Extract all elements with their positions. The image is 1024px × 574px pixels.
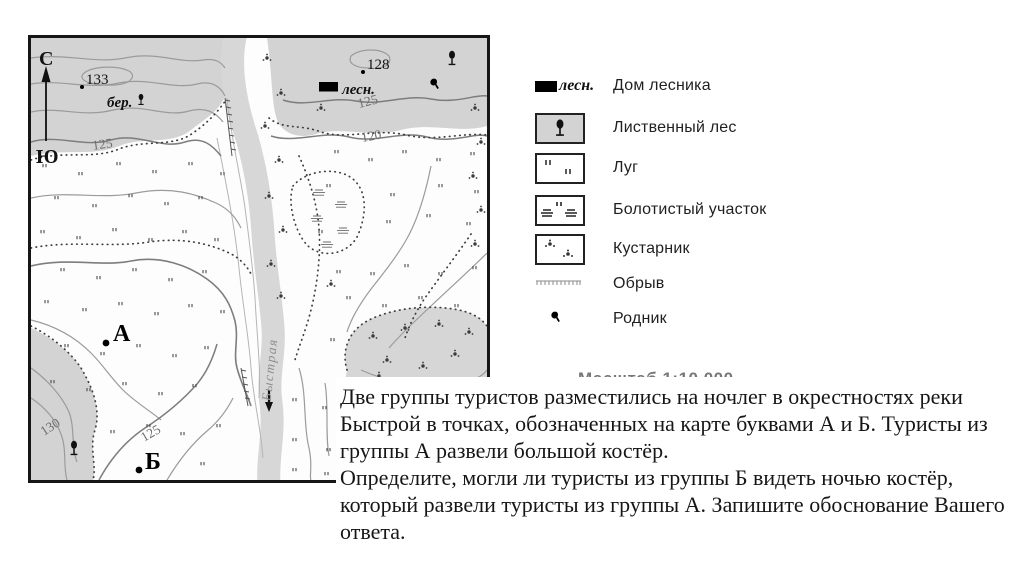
- point-b-label: Б: [145, 449, 161, 475]
- point-a-label: А: [113, 321, 131, 347]
- swamp-marks-icon: [537, 197, 583, 224]
- swamp-symbols: [311, 184, 349, 247]
- house-rect-icon: [535, 81, 557, 92]
- legend-label: Родник: [613, 310, 667, 328]
- cliff-hatch-icon: [535, 279, 583, 289]
- shrub-symbol: [535, 234, 599, 265]
- point-b-marker: Б: [136, 449, 161, 475]
- swamp-symbol: [535, 195, 599, 226]
- legend-row-cliff: Обрыв: [535, 274, 665, 294]
- forester-house-icon: [319, 82, 338, 92]
- compass-north-label: С: [39, 48, 53, 70]
- legend-row-meadow: Луг: [535, 152, 638, 184]
- cliff-symbol: [535, 279, 599, 289]
- legend-row-swamp: Болотистый участок: [535, 194, 766, 226]
- contour-120: 120: [360, 127, 383, 145]
- legend-label: Кустарник: [613, 240, 690, 258]
- meadow-symbol: [535, 153, 599, 184]
- legend-row-deciduous-forest: Лиственный лес: [535, 112, 737, 144]
- contour-125-bottom: 125: [138, 421, 163, 444]
- elevation-133-label: 133: [86, 72, 109, 88]
- point-a-marker: А: [103, 321, 131, 347]
- forester-house-symbol: лесн.: [535, 77, 599, 95]
- spring-drop-icon: [549, 311, 563, 327]
- contour-125-left: 125: [91, 135, 113, 153]
- question-paragraph-2: Определите, могли ли туристы из группы Б…: [336, 464, 1018, 545]
- elevation-128-label: 128: [367, 57, 390, 73]
- legend-label: Болотистый участок: [613, 201, 766, 219]
- question-block: Две группы туристов разместились на ночл…: [336, 377, 1018, 547]
- slide: С Ю А Б 133 128 бер. лесн. 1: [0, 0, 1024, 574]
- compass-south-label: Ю: [36, 146, 59, 168]
- shrub-marks-icon: [538, 236, 582, 263]
- forester-abbrev: лесн.: [559, 77, 594, 95]
- legend-label: Дом лесника: [613, 77, 711, 95]
- legend-row-shrub: Кустарник: [535, 232, 690, 266]
- elevation-dot: [361, 70, 365, 74]
- spring-symbol: [535, 311, 599, 327]
- legend-label: Обрыв: [613, 275, 665, 293]
- meadow-marks-icon: [538, 155, 582, 181]
- legend-row-spring: Родник: [535, 308, 667, 330]
- tree-icon: [550, 118, 570, 138]
- legend-row-forester-house: лесн. Дом лесника: [535, 76, 711, 96]
- map-legend: лесн. Дом лесника Лиственный лес: [535, 70, 835, 390]
- legend-label: Луг: [613, 159, 638, 177]
- deciduous-forest-symbol: [535, 113, 599, 144]
- legend-label: Лиственный лес: [613, 119, 737, 137]
- question-paragraph-1: Две группы туристов разместились на ночл…: [336, 383, 1018, 464]
- elevation-dot: [80, 85, 84, 89]
- birch-label: бер.: [107, 95, 132, 111]
